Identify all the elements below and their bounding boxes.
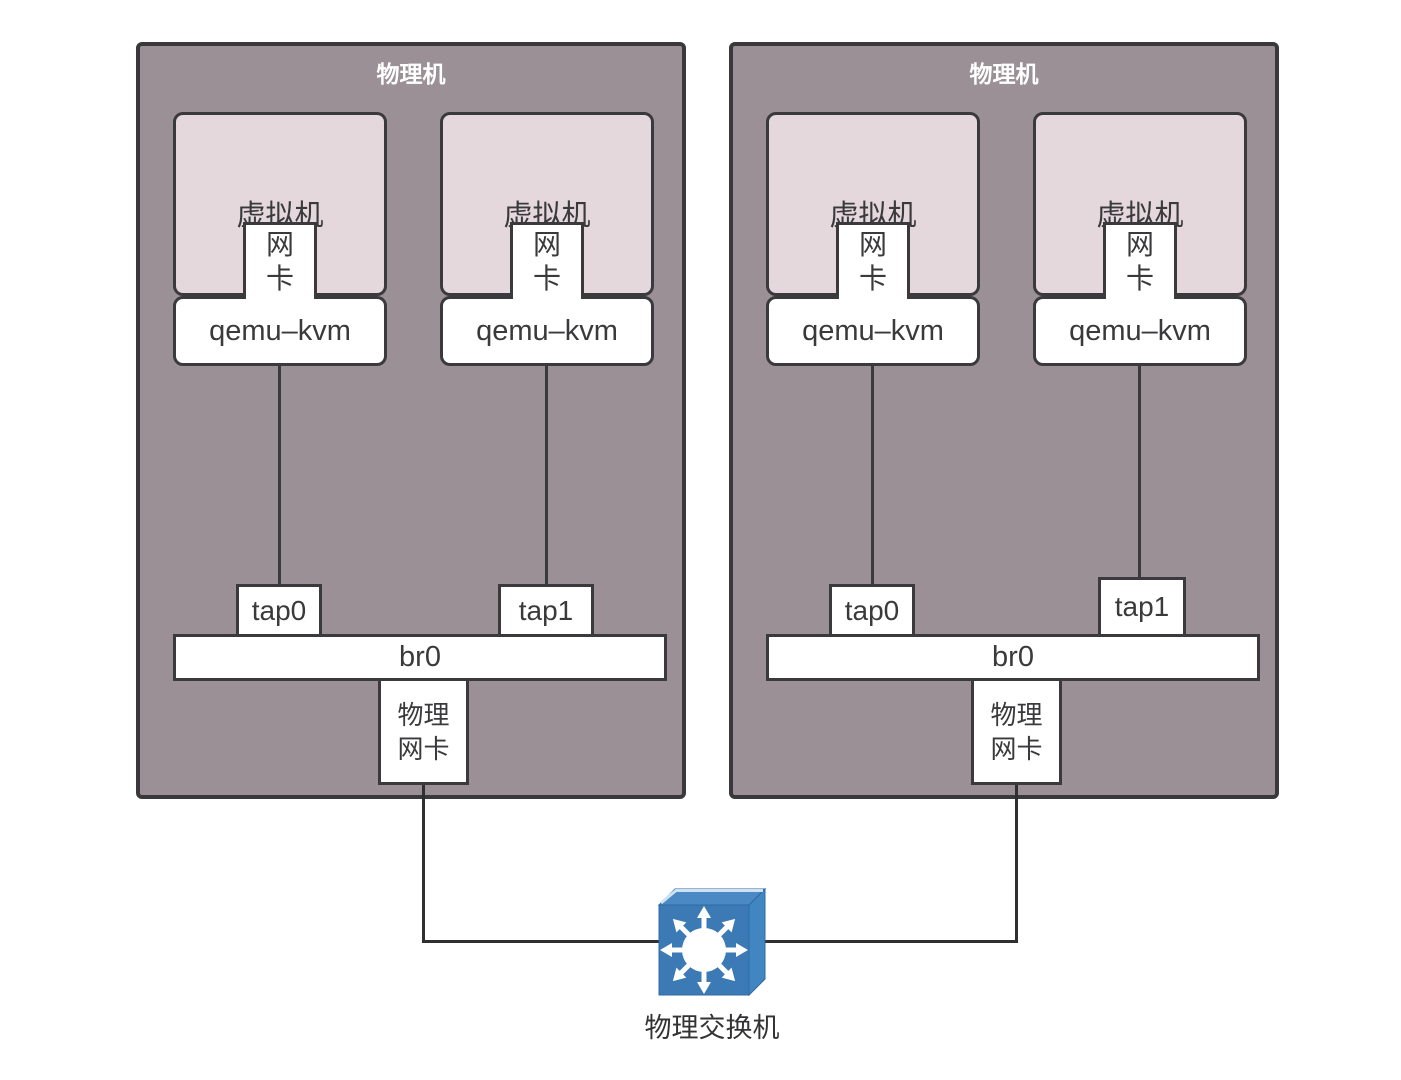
bridge-box: br0	[766, 634, 1260, 681]
connector-line	[871, 364, 874, 588]
vm-nic-box: 网 卡	[243, 222, 317, 299]
vm-nic-box: 网 卡	[836, 222, 910, 299]
physical-machine-1: 物理机 虚拟机 虚拟机 qemu–kvm qemu–kvm 网 卡 网 卡 ta…	[136, 42, 686, 799]
physical-nic-label-line2: 网卡	[397, 732, 449, 766]
physical-nic-label-line1: 物理	[397, 698, 449, 732]
tap1-box: tap1	[498, 584, 594, 637]
wire-left-vertical	[422, 783, 425, 943]
bridge-box: br0	[173, 634, 667, 681]
machine-title: 物理机	[140, 55, 682, 89]
wire-right-vertical	[1015, 783, 1018, 943]
physical-nic-label-line2: 网卡	[990, 732, 1042, 766]
physical-nic-box: 物理 网卡	[971, 678, 1062, 785]
physical-nic-label-line1: 物理	[990, 698, 1042, 732]
machine-title: 物理机	[733, 55, 1275, 89]
vm-nic-label-line1: 网	[859, 228, 887, 262]
wire-right-horizontal	[760, 940, 1018, 943]
tap1-box: tap1	[1098, 577, 1186, 637]
wire-left-horizontal	[422, 940, 660, 943]
switch-label: 物理交换机	[562, 1006, 862, 1045]
qemu-kvm-box: qemu–kvm	[766, 296, 980, 366]
qemu-kvm-box: qemu–kvm	[173, 296, 387, 366]
vm-nic-box: 网 卡	[510, 222, 584, 299]
qemu-kvm-box: qemu–kvm	[440, 296, 654, 366]
tap0-box: tap0	[236, 584, 322, 637]
vm-nic-label-line1: 网	[533, 228, 561, 262]
vm-nic-label-line2: 卡	[533, 262, 561, 296]
qemu-kvm-box: qemu–kvm	[1033, 296, 1247, 366]
vm-nic-label-line2: 卡	[859, 262, 887, 296]
connector-line	[278, 364, 281, 588]
switch-icon	[654, 884, 768, 998]
vm-nic-box: 网 卡	[1103, 222, 1177, 299]
physical-machine-2: 物理机 虚拟机 虚拟机 qemu–kvm qemu–kvm 网 卡 网 卡 ta…	[729, 42, 1279, 799]
connector-line	[1138, 364, 1141, 588]
vm-nic-label-line2: 卡	[1126, 262, 1154, 296]
connector-line	[545, 364, 548, 588]
vm-nic-label-line1: 网	[1126, 228, 1154, 262]
diagram-canvas: 物理机 虚拟机 虚拟机 qemu–kvm qemu–kvm 网 卡 网 卡 ta…	[0, 0, 1401, 1080]
vm-nic-label-line1: 网	[266, 228, 294, 262]
tap0-box: tap0	[829, 584, 915, 637]
physical-nic-box: 物理 网卡	[378, 678, 469, 785]
vm-nic-label-line2: 卡	[266, 262, 294, 296]
